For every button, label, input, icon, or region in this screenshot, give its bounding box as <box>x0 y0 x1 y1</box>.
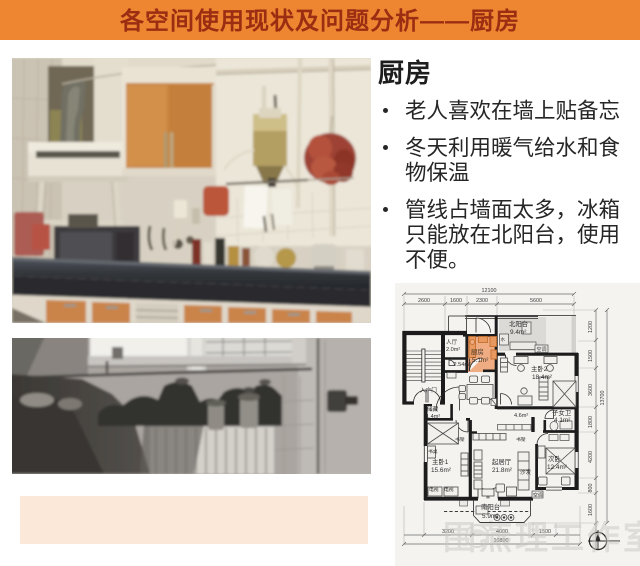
svg-text:子女卫: 子女卫 <box>552 408 572 417</box>
svg-text:9.4m²: 9.4m² <box>510 329 526 336</box>
svg-text:书架: 书架 <box>455 436 465 443</box>
svg-text:书桌: 书桌 <box>428 448 438 455</box>
svg-text:南阳台: 南阳台 <box>481 502 500 511</box>
svg-text:12.4m²: 12.4m² <box>547 464 567 471</box>
svg-text:12100: 12100 <box>482 288 497 294</box>
svg-text:2.0m²: 2.0m² <box>446 347 460 353</box>
svg-text:1600: 1600 <box>450 298 462 304</box>
svg-text:13700: 13700 <box>600 391 606 406</box>
svg-text:2300: 2300 <box>476 298 488 304</box>
svg-text:1800: 1800 <box>588 416 594 428</box>
svg-text:4200: 4200 <box>588 451 594 463</box>
svg-text:电视: 电视 <box>429 486 439 493</box>
svg-text:5.9m²: 5.9m² <box>482 513 498 520</box>
svg-text:1.4m²: 1.4m² <box>426 414 440 420</box>
svg-text:北阳台: 北阳台 <box>509 319 528 328</box>
svg-text:空调: 空调 <box>533 492 543 499</box>
svg-text:1500: 1500 <box>588 350 594 362</box>
svg-text:4.6m²: 4.6m² <box>514 413 528 419</box>
svg-text:2.54m²: 2.54m² <box>454 362 472 368</box>
svg-text:电视: 电视 <box>444 486 454 493</box>
svg-text:3600: 3600 <box>588 384 594 396</box>
svg-text:主卧1: 主卧1 <box>432 457 449 466</box>
svg-text:次卧: 次卧 <box>548 454 561 463</box>
svg-text:主卧2: 主卧2 <box>531 364 548 373</box>
svg-text:800: 800 <box>588 484 594 493</box>
svg-text:5600: 5600 <box>530 298 542 304</box>
svg-text:2600: 2600 <box>418 298 430 304</box>
svg-text:5.1m²: 5.1m² <box>472 357 488 364</box>
svg-text:围燕理工作室: 围燕理工作室 <box>443 519 640 556</box>
svg-text:1600: 1600 <box>588 504 594 516</box>
svg-text:4.1m²: 4.1m² <box>554 417 570 424</box>
svg-text:储藏: 储藏 <box>427 405 439 413</box>
svg-text:起居厅: 起居厅 <box>492 458 512 466</box>
svg-text:空调: 空调 <box>537 346 547 353</box>
svg-text:厨房: 厨房 <box>471 347 484 356</box>
svg-text:沙发: 沙发 <box>520 468 532 476</box>
svg-text:水: 水 <box>501 336 506 342</box>
svg-text:人厅: 人厅 <box>446 339 458 346</box>
svg-text:21.8m²: 21.8m² <box>492 467 512 474</box>
svg-text:书架: 书架 <box>516 436 526 443</box>
svg-text:15.6m²: 15.6m² <box>431 467 451 474</box>
svg-text:1200: 1200 <box>588 321 594 333</box>
svg-text:入户门: 入户门 <box>420 386 437 394</box>
svg-text:18.4m²: 18.4m² <box>532 374 552 381</box>
